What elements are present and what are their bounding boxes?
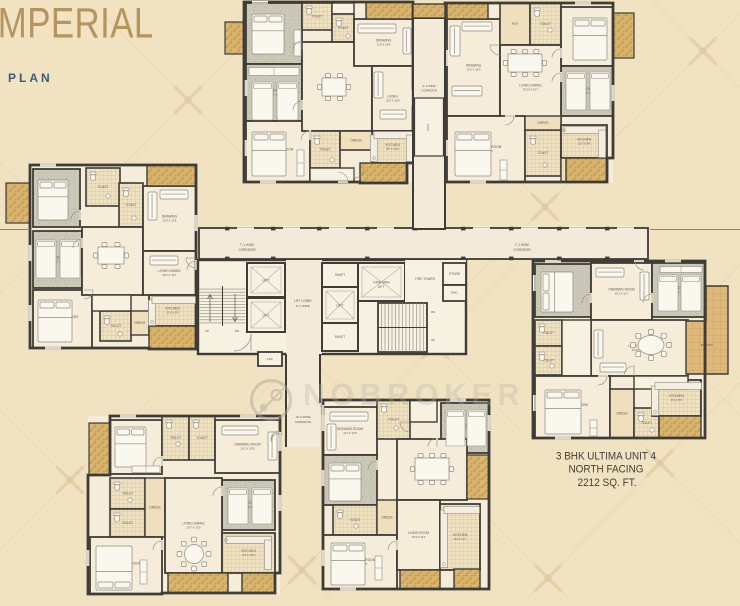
svg-text:TOILET: TOILET [122,492,133,496]
svg-text:LIFT: LIFT [337,303,344,307]
svg-text:FHC: FHC [451,291,458,295]
svg-text:FOY: FOY [512,22,519,26]
svg-text:8'4 X 11'7: 8'4 X 11'7 [454,537,467,541]
svg-text:20'7 X 10'7: 20'7 X 10'7 [163,273,177,277]
svg-text:LIFT LOBBY: LIFT LOBBY [294,299,313,303]
svg-text:UP: UP [205,329,209,333]
svg-text:NOBROKER: NOBROKER [303,378,525,412]
svg-text:STORE: STORE [449,272,460,276]
svg-text:LIFT: LIFT [263,313,270,317]
svg-text:6'-1 WIDE: 6'-1 WIDE [422,84,435,88]
svg-text:8'4 X 10'0: 8'4 X 10'0 [242,553,255,557]
svg-text:13'2 X 16'0: 13'2 X 16'0 [467,68,481,72]
svg-text:10'-6 WIDE: 10'-6 WIDE [295,415,310,419]
svg-text:CORRIDOR: CORRIDOR [238,248,256,252]
svg-text:DN: DN [431,310,435,314]
svg-text:DRESS: DRESS [351,139,362,143]
svg-text:2212 SQ. FT.: 2212 SQ. FT. [578,477,637,489]
svg-text:TOILET: TOILET [543,331,554,335]
svg-text:20'10 X 16'7: 20'10 X 16'7 [523,88,539,92]
svg-text:NORTH FACING: NORTH FACING [569,464,644,476]
svg-text:DRESS: DRESS [150,506,161,510]
svg-text:20'7 X 10'0: 20'7 X 10'0 [187,526,201,530]
svg-text:8'0 X 10'0: 8'0 X 10'0 [386,147,399,151]
svg-text:TOILET: TOILET [349,518,360,522]
svg-text:15'1 X 12'6: 15'1 X 12'6 [241,447,255,451]
svg-text:DUCT: DUCT [426,123,430,131]
svg-text:IMPERIAL: IMPERIAL [0,0,154,47]
svg-text:DRESS: DRESS [538,121,549,125]
svg-text:TOILET: TOILET [125,203,136,207]
svg-text:15'1 X 11'7: 15'1 X 11'7 [615,292,629,296]
svg-text:CORRIDOR: CORRIDOR [295,420,312,424]
svg-text:12'2 X 8'6: 12'2 X 8'6 [578,142,591,146]
svg-text:DRESS: DRESS [617,412,628,416]
svg-text:DRESS: DRESS [135,321,146,325]
svg-text:BALCONY: BALCONY [701,343,714,347]
svg-text:TOILET: TOILET [311,15,322,19]
svg-text:7'-1 WIDE: 7'-1 WIDE [515,243,529,247]
svg-text:TOILET: TOILET [319,148,330,152]
svg-text:CORRIDOR: CORRIDOR [421,89,437,93]
svg-text:12'0 X 10'4: 12'0 X 10'4 [386,99,400,103]
svg-text:CORRIDOR: CORRIDOR [513,248,531,252]
svg-text:DRESS: DRESS [382,516,393,520]
svg-text:TOILET: TOILET [122,521,133,525]
svg-text:12'0 X 10'6: 12'0 X 10'6 [377,43,391,47]
svg-text:12'0 X 8'0: 12'0 X 8'0 [166,311,179,315]
svg-text:15'4 X 11'0: 15'4 X 11'0 [412,535,426,539]
svg-text:SHAFT: SHAFT [335,335,346,339]
svg-text:3 BHK ULTIMA UNIT 4: 3 BHK ULTIMA UNIT 4 [556,451,656,463]
svg-text:TOILET: TOILET [540,22,551,26]
svg-text:8'-1 WIDE: 8'-1 WIDE [296,304,310,308]
svg-text:TOILET: TOILET [110,324,121,328]
svg-text:LIFT: LIFT [378,285,385,289]
svg-text:8'4 X 8'0: 8'4 X 8'0 [671,398,682,402]
svg-text:PLAN: PLAN [8,71,53,85]
svg-text:TOILET: TOILET [388,418,399,422]
svg-text:11'1 X 12'6: 11'1 X 12'6 [343,431,357,435]
svg-text:TOILET: TOILET [97,185,108,189]
svg-text:SHAFT: SHAFT [335,273,346,277]
svg-text:TOILET: TOILET [170,436,181,440]
svg-text:FHC: FHC [267,357,274,361]
svg-text:TOILET: TOILET [537,151,548,155]
svg-text:7'-1 WIDE: 7'-1 WIDE [240,243,254,247]
svg-text:FIRE MAN: FIRE MAN [373,280,390,284]
svg-text:12'0 X 13'6: 12'0 X 13'6 [163,219,177,223]
svg-text:SP: SP [431,338,435,342]
svg-text:TOILET: TOILET [196,436,207,440]
svg-text:DN: DN [235,329,239,333]
svg-text:FIRE TOWER: FIRE TOWER [415,277,436,281]
svg-text:LIFT: LIFT [263,278,270,282]
